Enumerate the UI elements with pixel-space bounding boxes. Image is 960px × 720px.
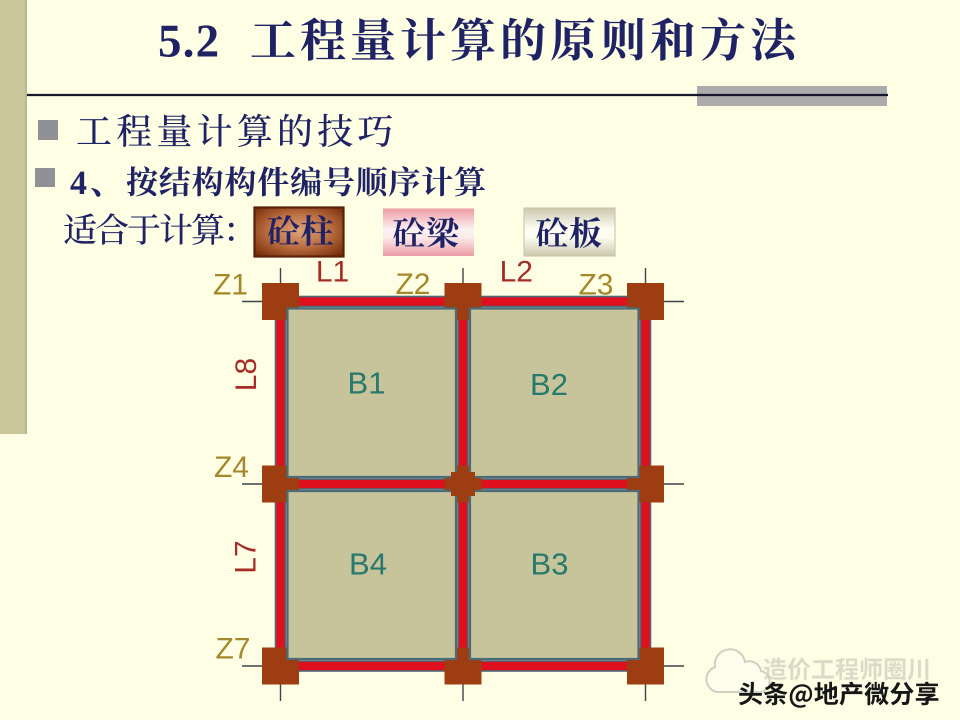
svg-text:Z4: Z4 <box>214 451 249 484</box>
svg-text:Z1: Z1 <box>213 268 248 301</box>
svg-text:L8: L8 <box>230 358 263 391</box>
svg-text:L1: L1 <box>316 256 349 289</box>
svg-text:Z3: Z3 <box>578 269 613 302</box>
svg-text:B2: B2 <box>530 367 568 402</box>
svg-text:B1: B1 <box>348 366 386 401</box>
svg-text:L7: L7 <box>230 540 263 573</box>
svg-text:B3: B3 <box>531 547 569 582</box>
svg-text:Z7: Z7 <box>215 633 250 666</box>
svg-text:Z2: Z2 <box>395 268 430 301</box>
svg-text:L2: L2 <box>500 256 533 289</box>
svg-text:B4: B4 <box>349 547 387 582</box>
